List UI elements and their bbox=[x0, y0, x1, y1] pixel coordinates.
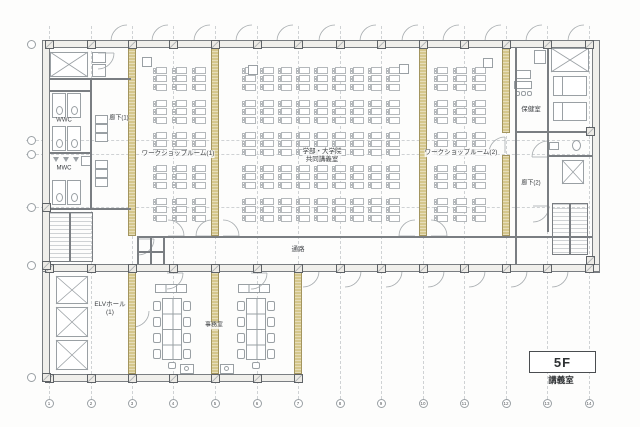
partition-wall bbox=[502, 155, 510, 236]
lecture-desk bbox=[371, 206, 382, 213]
office-chair bbox=[153, 333, 161, 343]
lecture-desk bbox=[437, 117, 448, 124]
lecture-desk bbox=[156, 132, 167, 139]
interior-wall bbox=[548, 155, 593, 157]
lecture-desk bbox=[156, 84, 167, 91]
office-chair bbox=[237, 349, 245, 359]
lecture-desk bbox=[437, 173, 448, 180]
lecture-desk bbox=[176, 132, 187, 139]
office-chair bbox=[153, 317, 161, 327]
door-swing-arc bbox=[469, 271, 485, 287]
lecture-desk bbox=[299, 206, 310, 213]
grid-line-vertical bbox=[589, 26, 590, 399]
lecture-desk bbox=[299, 198, 310, 205]
door-swing-arc bbox=[277, 25, 293, 41]
label-workshop-room-2: ワークショップルーム(2) bbox=[425, 149, 498, 157]
lecture-desk bbox=[389, 140, 400, 147]
office-cabinet bbox=[238, 284, 270, 293]
health-bed bbox=[553, 102, 587, 121]
structural-column bbox=[253, 264, 262, 273]
lecture-desk bbox=[245, 117, 256, 124]
grid-bubble-bottom: 13 bbox=[543, 399, 552, 408]
lecture-desk bbox=[176, 182, 187, 189]
lecture-desk bbox=[317, 67, 328, 74]
lecture-desk bbox=[317, 100, 328, 107]
structural-column bbox=[211, 264, 220, 273]
label-main-line2: 共同講義室 bbox=[303, 156, 342, 164]
lecture-desk bbox=[263, 206, 274, 213]
structural-column bbox=[377, 40, 386, 49]
lecture-desk bbox=[281, 198, 292, 205]
lecture-desk bbox=[263, 75, 274, 82]
office-chair bbox=[183, 349, 191, 359]
structural-column bbox=[502, 264, 511, 273]
structural-column bbox=[169, 264, 178, 273]
door-swing-arc bbox=[138, 239, 154, 255]
door-swing-arc bbox=[399, 220, 415, 236]
lecture-desk bbox=[371, 67, 382, 74]
door-swing-arc bbox=[428, 271, 444, 287]
lecture-desk bbox=[299, 67, 310, 74]
lecture-desk bbox=[353, 100, 364, 107]
label-workshop-room-1: ワークショップルーム(1) bbox=[142, 150, 215, 158]
lecture-desk bbox=[176, 173, 187, 180]
lecture-desk bbox=[475, 198, 486, 205]
shaft-box bbox=[56, 340, 88, 370]
lecture-desk bbox=[335, 215, 346, 222]
structural-column bbox=[45, 40, 54, 49]
lecture-desk bbox=[176, 67, 187, 74]
office-chair bbox=[183, 301, 191, 311]
lecture-desk bbox=[437, 67, 448, 74]
lecture-desk bbox=[371, 215, 382, 222]
office-chair bbox=[153, 301, 161, 311]
wash-basin bbox=[95, 160, 108, 169]
lecture-desk bbox=[195, 182, 206, 189]
lecture-desk bbox=[437, 198, 448, 205]
lecture-desk bbox=[299, 140, 310, 147]
grid-bubble-bottom: 5 bbox=[211, 399, 220, 408]
interior-wall bbox=[44, 90, 91, 92]
lecture-desk bbox=[371, 182, 382, 189]
lecture-desk bbox=[281, 84, 292, 91]
lecture-desk bbox=[371, 100, 382, 107]
lecture-desk bbox=[371, 173, 382, 180]
lecture-desk bbox=[245, 149, 256, 156]
lecture-desk bbox=[353, 165, 364, 172]
toilet-fixture bbox=[56, 106, 63, 115]
shaft-box bbox=[562, 160, 584, 184]
closet bbox=[92, 64, 106, 77]
toilet-fixture bbox=[71, 139, 78, 148]
lecture-desk bbox=[456, 206, 467, 213]
wash-basin bbox=[95, 115, 108, 124]
lecture-desk bbox=[475, 206, 486, 213]
lecture-desk bbox=[281, 117, 292, 124]
interior-wall bbox=[515, 48, 517, 264]
lecture-desk bbox=[176, 84, 187, 91]
wash-basin bbox=[95, 133, 108, 142]
office-chair bbox=[267, 317, 275, 327]
lecture-desk bbox=[195, 84, 206, 91]
door-swing-arc bbox=[319, 25, 335, 41]
door-swing-arc bbox=[485, 25, 501, 41]
structural-column bbox=[211, 40, 220, 49]
lecture-desk bbox=[456, 132, 467, 139]
door-swing-arc bbox=[511, 271, 527, 287]
door-swing-arc bbox=[402, 25, 418, 41]
lecture-desk bbox=[281, 140, 292, 147]
lecture-desk bbox=[317, 140, 328, 147]
lecture-desk bbox=[335, 173, 346, 180]
structural-column bbox=[586, 127, 595, 136]
lecture-desk bbox=[281, 165, 292, 172]
lecture-desk bbox=[245, 84, 256, 91]
lecture-desk bbox=[371, 75, 382, 82]
partition-wall bbox=[211, 48, 219, 236]
lecture-desk bbox=[176, 215, 187, 222]
structural-column bbox=[586, 256, 595, 265]
lecture-desk bbox=[335, 100, 346, 107]
lecture-desk bbox=[263, 84, 274, 91]
lecture-desk bbox=[475, 108, 486, 115]
wash-basin bbox=[95, 178, 108, 187]
lecture-desk bbox=[371, 108, 382, 115]
grid-bubble-bottom: 11 bbox=[460, 399, 469, 408]
label-corridor-2: 廊下(2) bbox=[521, 180, 540, 187]
lecture-desk bbox=[281, 108, 292, 115]
corridor-north-wall bbox=[137, 236, 592, 238]
lecture-desk bbox=[299, 173, 310, 180]
lecture-desk bbox=[156, 165, 167, 172]
shaft-box bbox=[50, 52, 88, 77]
lecture-desk bbox=[317, 206, 328, 213]
grid-bubble-bottom: 3 bbox=[128, 399, 137, 408]
structural-column bbox=[419, 40, 428, 49]
bed-pillow-line bbox=[562, 103, 563, 120]
door-swing-arc bbox=[152, 25, 168, 41]
lecture-desk bbox=[437, 100, 448, 107]
lecture-desk bbox=[456, 75, 467, 82]
floor-plan: 廊下(1) WWC MWC ワークショップルーム(1) 学部・大学院 共同講義室… bbox=[0, 0, 640, 427]
office-chair bbox=[252, 362, 260, 369]
lecture-desk bbox=[437, 84, 448, 91]
grid-bubble-bottom: 2 bbox=[87, 399, 96, 408]
grid-bubble-left bbox=[27, 373, 36, 382]
shaft-box bbox=[551, 48, 589, 72]
office-chair bbox=[237, 317, 245, 327]
lecture-desk bbox=[195, 140, 206, 147]
label-mwc: MWC bbox=[57, 165, 72, 172]
lecture-desk bbox=[456, 84, 467, 91]
lecture-desk bbox=[389, 75, 400, 82]
structural-column bbox=[377, 264, 386, 273]
structural-column bbox=[460, 40, 469, 49]
lecture-desk bbox=[195, 67, 206, 74]
lecture-desk bbox=[317, 165, 328, 172]
office-chair bbox=[237, 333, 245, 343]
grid-bubble-bottom: 8 bbox=[336, 399, 345, 408]
structural-column bbox=[585, 264, 594, 273]
lecture-desk bbox=[437, 215, 448, 222]
grid-bubble-bottom: 10 bbox=[419, 399, 428, 408]
lecture-desk bbox=[195, 100, 206, 107]
lecture-desk bbox=[263, 117, 274, 124]
lecture-desk bbox=[353, 206, 364, 213]
lecture-desk bbox=[371, 84, 382, 91]
lecture-desk bbox=[156, 206, 167, 213]
lecture-desk bbox=[299, 117, 310, 124]
lecture-desk bbox=[353, 75, 364, 82]
lecture-desk bbox=[456, 182, 467, 189]
grid-bubble-left bbox=[27, 150, 36, 159]
grid-bubble-bottom: 7 bbox=[294, 399, 303, 408]
lecture-desk bbox=[317, 132, 328, 139]
door-swing-arc bbox=[345, 271, 361, 287]
lecture-desk bbox=[263, 215, 274, 222]
structural-column bbox=[419, 264, 428, 273]
door-swing-arc bbox=[196, 220, 212, 236]
lecture-desk bbox=[299, 84, 310, 91]
door-swing-arc bbox=[431, 220, 447, 236]
interior-wall bbox=[90, 80, 92, 210]
lecture-desk bbox=[195, 198, 206, 205]
lecture-desk bbox=[353, 215, 364, 222]
lecture-desk bbox=[437, 75, 448, 82]
office-chair bbox=[267, 301, 275, 311]
podium-desk bbox=[483, 58, 493, 68]
lecture-desk bbox=[335, 182, 346, 189]
lecture-desk bbox=[353, 117, 364, 124]
lecture-desk bbox=[353, 84, 364, 91]
lecture-desk bbox=[475, 67, 486, 74]
label-office: 事務室 bbox=[205, 322, 223, 329]
label-main-lecture-room: 学部・大学院 共同講義室 bbox=[303, 148, 342, 164]
partition-wall bbox=[128, 272, 136, 374]
lecture-desk bbox=[353, 149, 364, 156]
lecture-desk bbox=[263, 165, 274, 172]
office-chair bbox=[168, 362, 176, 369]
office-chair bbox=[153, 349, 161, 359]
label-elv-hall: ELVホール (1) bbox=[94, 301, 125, 317]
structural-column bbox=[336, 264, 345, 273]
lecture-desk bbox=[281, 206, 292, 213]
lecture-desk bbox=[353, 108, 364, 115]
door-swing-arc bbox=[443, 25, 459, 41]
label-health-room: 保健室 bbox=[521, 106, 541, 114]
lecture-desk bbox=[475, 100, 486, 107]
grid-bubble-bottom: 14 bbox=[585, 399, 594, 408]
lecture-desk bbox=[317, 215, 328, 222]
lecture-desk bbox=[353, 140, 364, 147]
wall-south-main bbox=[42, 264, 600, 272]
lecture-desk bbox=[317, 198, 328, 205]
office-chair bbox=[267, 333, 275, 343]
lecture-desk bbox=[389, 108, 400, 115]
health-chair bbox=[527, 91, 532, 96]
structural-column bbox=[128, 40, 137, 49]
toilet-fixture bbox=[71, 193, 78, 202]
office-cabinet bbox=[155, 284, 187, 293]
health-desk bbox=[514, 81, 532, 89]
lecture-desk bbox=[176, 75, 187, 82]
floor-number: 5F bbox=[554, 355, 571, 370]
podium-desk bbox=[399, 64, 409, 74]
label-corridor-1: 廊下(1) bbox=[109, 115, 128, 122]
lecture-desk bbox=[156, 198, 167, 205]
lecture-desk bbox=[335, 140, 346, 147]
lecture-desk bbox=[335, 165, 346, 172]
lecture-desk bbox=[475, 117, 486, 124]
lecture-desk bbox=[353, 132, 364, 139]
office-chair bbox=[183, 317, 191, 327]
partition-wall bbox=[502, 48, 510, 133]
lecture-desk bbox=[353, 173, 364, 180]
toilet-fixture bbox=[56, 193, 63, 202]
lecture-desk bbox=[456, 117, 467, 124]
partition-wall bbox=[294, 272, 302, 374]
lecture-desk bbox=[156, 75, 167, 82]
lecture-desk bbox=[389, 173, 400, 180]
lecture-desk bbox=[335, 117, 346, 124]
lecture-desk bbox=[335, 67, 346, 74]
shaft-box bbox=[56, 307, 88, 337]
lecture-desk bbox=[156, 173, 167, 180]
podium-desk bbox=[142, 57, 152, 67]
structural-column bbox=[169, 40, 178, 49]
bed-pillow-line bbox=[562, 77, 563, 95]
lecture-desk bbox=[371, 165, 382, 172]
lecture-desk bbox=[335, 108, 346, 115]
grid-bubble-bottom: 9 bbox=[377, 399, 386, 408]
door-swing-arc bbox=[111, 25, 127, 41]
lecture-desk bbox=[195, 75, 206, 82]
lecture-desk bbox=[389, 182, 400, 189]
lecture-desk bbox=[437, 206, 448, 213]
interior-wall bbox=[547, 48, 549, 232]
lecture-desk bbox=[335, 132, 346, 139]
office-equipment-dial bbox=[184, 366, 189, 371]
lecture-desk bbox=[456, 140, 467, 147]
grid-bubble-bottom: 12 bbox=[502, 399, 511, 408]
structural-column bbox=[294, 40, 303, 49]
structural-column bbox=[87, 374, 96, 383]
lecture-desk bbox=[195, 215, 206, 222]
lecture-desk bbox=[281, 132, 292, 139]
lecture-desk bbox=[176, 140, 187, 147]
lecture-desk bbox=[456, 165, 467, 172]
lecture-desk bbox=[299, 165, 310, 172]
interior-wall bbox=[137, 251, 164, 253]
lecture-desk bbox=[245, 173, 256, 180]
office-chair bbox=[183, 333, 191, 343]
lecture-desk bbox=[176, 100, 187, 107]
lecture-desk bbox=[389, 117, 400, 124]
lecture-desk bbox=[156, 215, 167, 222]
lecture-desk bbox=[371, 140, 382, 147]
lecture-desk bbox=[176, 198, 187, 205]
lecture-desk bbox=[475, 182, 486, 189]
lecture-desk bbox=[299, 75, 310, 82]
grid-bubble-left bbox=[27, 203, 36, 212]
structural-column bbox=[253, 374, 262, 383]
lecture-desk bbox=[176, 108, 187, 115]
urinal-fixture bbox=[63, 157, 69, 162]
structural-column bbox=[294, 264, 303, 273]
structural-column bbox=[87, 40, 96, 49]
lecture-desk bbox=[156, 108, 167, 115]
label-elv-line2: (1) bbox=[94, 309, 125, 317]
lecture-desk bbox=[245, 108, 256, 115]
structural-column bbox=[169, 374, 178, 383]
interior-wall bbox=[42, 78, 131, 80]
door-swing-arc bbox=[236, 25, 252, 41]
lecture-desk bbox=[195, 165, 206, 172]
lecture-desk bbox=[389, 215, 400, 222]
label-passage: 通路 bbox=[292, 246, 305, 254]
lecture-desk bbox=[263, 100, 274, 107]
lecture-desk bbox=[245, 75, 256, 82]
lecture-desk bbox=[176, 206, 187, 213]
lecture-desk bbox=[317, 75, 328, 82]
urinal-fixture bbox=[53, 157, 59, 162]
lecture-desk bbox=[317, 108, 328, 115]
lecture-desk bbox=[195, 108, 206, 115]
lecture-desk bbox=[281, 75, 292, 82]
structural-column bbox=[460, 264, 469, 273]
lecture-desk bbox=[195, 173, 206, 180]
lecture-desk bbox=[475, 165, 486, 172]
lecture-desk bbox=[245, 206, 256, 213]
grid-bubble-bottom: 6 bbox=[253, 399, 262, 408]
lecture-desk bbox=[371, 149, 382, 156]
lecture-desk bbox=[176, 117, 187, 124]
door-swing-arc bbox=[360, 25, 376, 41]
lecture-desk bbox=[389, 206, 400, 213]
lecture-desk bbox=[389, 84, 400, 91]
structural-column bbox=[253, 40, 262, 49]
lecture-desk bbox=[317, 182, 328, 189]
lecture-desk bbox=[281, 67, 292, 74]
lecture-desk bbox=[263, 173, 274, 180]
lecture-desk bbox=[389, 149, 400, 156]
lecture-desk bbox=[389, 100, 400, 107]
lecture-desk bbox=[335, 75, 346, 82]
closet bbox=[534, 50, 546, 64]
lecture-desk bbox=[371, 198, 382, 205]
health-chair bbox=[521, 91, 526, 96]
structural-column bbox=[42, 373, 51, 382]
office-table bbox=[162, 298, 182, 360]
structural-column bbox=[211, 374, 220, 383]
lecture-desk bbox=[437, 132, 448, 139]
lecture-desk bbox=[263, 182, 274, 189]
lecture-desk bbox=[389, 132, 400, 139]
lecture-desk bbox=[437, 165, 448, 172]
stair-rail bbox=[569, 203, 571, 255]
lecture-desk bbox=[195, 117, 206, 124]
lecture-desk bbox=[299, 100, 310, 107]
lecture-desk bbox=[245, 198, 256, 205]
lecture-desk bbox=[456, 67, 467, 74]
office-table bbox=[246, 298, 266, 360]
lecture-desk bbox=[156, 182, 167, 189]
lecture-desk bbox=[299, 215, 310, 222]
podium-desk bbox=[248, 65, 258, 75]
lecture-desk bbox=[335, 198, 346, 205]
lecture-desk bbox=[156, 117, 167, 124]
lecture-desk bbox=[475, 84, 486, 91]
